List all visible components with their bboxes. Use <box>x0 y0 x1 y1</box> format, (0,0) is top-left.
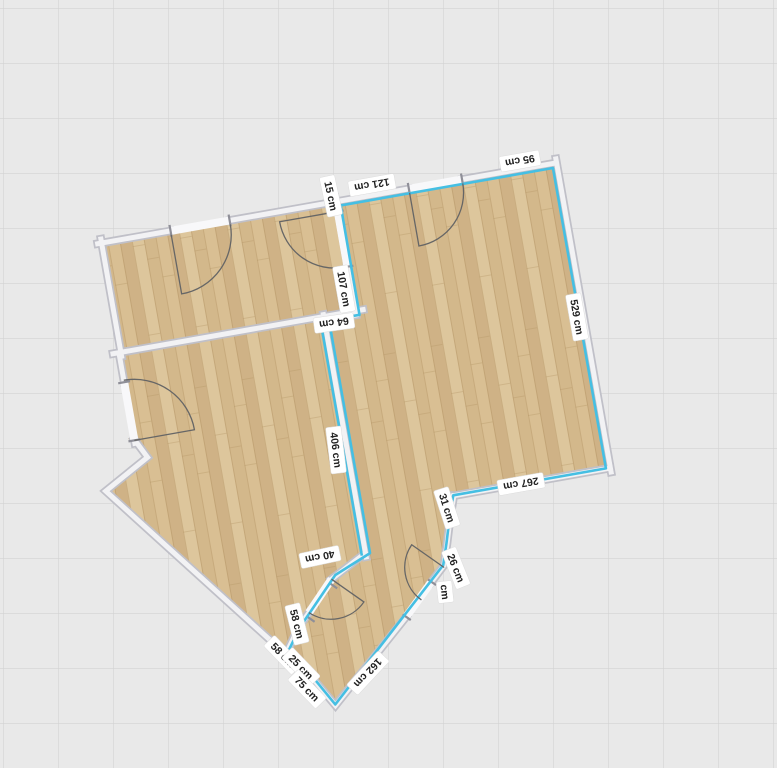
dimension-label[interactable]: cm <box>436 580 454 603</box>
floorplan-canvas[interactable]: cm31 cm26 cm267 cm529 cm95 cm121 cm15 cm… <box>0 0 777 768</box>
dimension-label-text: cm <box>438 584 452 600</box>
